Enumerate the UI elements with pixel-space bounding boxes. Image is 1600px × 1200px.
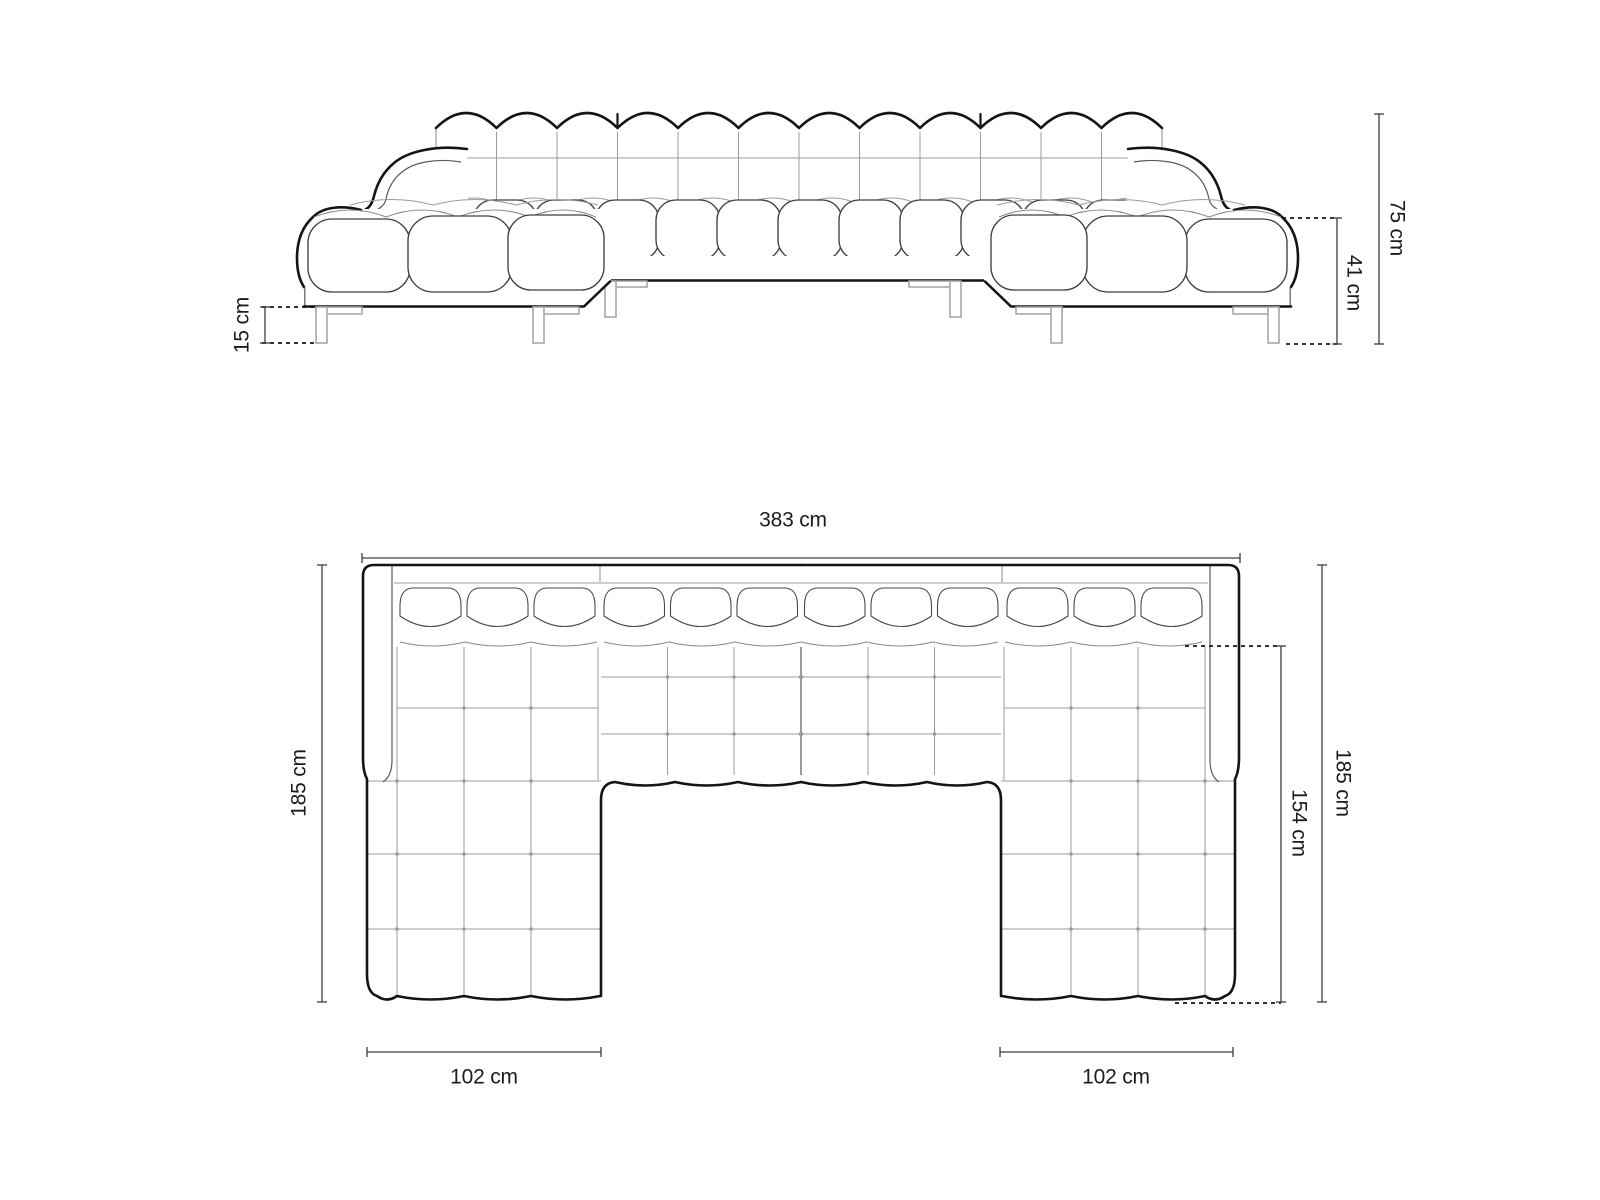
front-arm-height-label: 41 cm [1344, 255, 1365, 311]
plan-left-chaise-width-label: 102 cm [450, 1067, 518, 1088]
plan-total-width-label: 383 cm [759, 510, 827, 531]
front-elevation-view [297, 112, 1298, 343]
plan-chaise-depth-label: 154 cm [1289, 789, 1310, 857]
front-leg-height-label: 15 cm [232, 297, 253, 353]
sofa-line-drawing [0, 0, 1600, 1200]
plan-left-half [363, 565, 802, 1000]
plan-view [363, 565, 1239, 1000]
diagram-canvas: 75 cm 41 cm 15 cm 383 cm 185 cm 185 cm 1… [0, 0, 1600, 1200]
front-total-height-label: 75 cm [1387, 200, 1408, 256]
plan-right-depth-label: 185 cm [1333, 749, 1354, 817]
plan-right-chaise-width-label: 102 cm [1082, 1067, 1150, 1088]
plan-left-depth-label: 185 cm [289, 749, 310, 817]
